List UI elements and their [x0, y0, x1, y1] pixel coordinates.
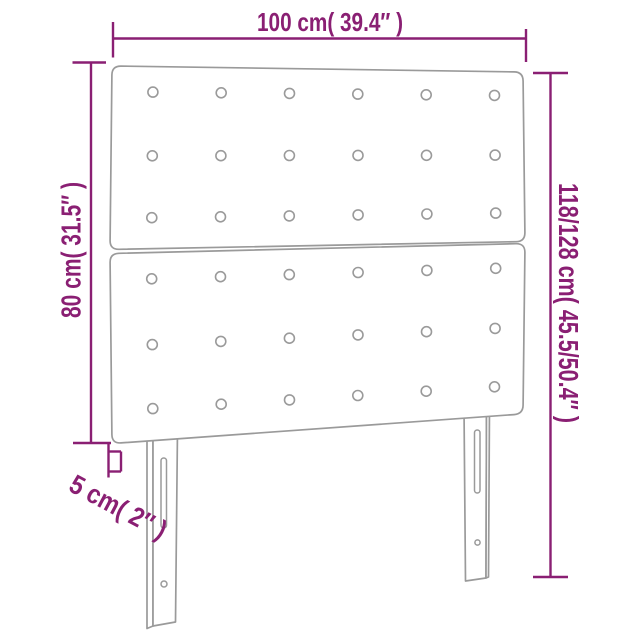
width-dimension-label: 100 cm( 39.4″ ): [257, 7, 403, 37]
tufting-button: [422, 150, 432, 160]
right-leg-side-face: [486, 406, 490, 578]
tufting-button: [422, 327, 432, 337]
tufting-button: [353, 210, 363, 220]
tufting-button: [491, 208, 501, 218]
tufting-button: [147, 151, 157, 161]
tufting-button: [422, 265, 432, 275]
headboard-panels: [110, 66, 525, 443]
right-leg-screw-hole: [475, 540, 480, 545]
tufting-button: [148, 87, 158, 97]
tufting-button: [216, 272, 226, 282]
tufting-button: [285, 88, 295, 98]
board-height-dimension-label: 80 cm( 31.5″ ): [56, 182, 87, 318]
tufting-button: [353, 391, 363, 401]
tufting-button: [147, 274, 157, 284]
tufting-button: [490, 323, 500, 333]
tufting-button: [422, 209, 432, 219]
diagram-canvas: 100 cm( 39.4″ ) 80 cm( 31.5″ ) 118/128 c…: [0, 0, 640, 640]
tufting-button: [284, 333, 294, 343]
tufting-button: [353, 330, 363, 340]
tufting-button: [216, 212, 226, 222]
total-height-dimension-label: 118/128 cm( 45.5/50.4″ ): [553, 183, 584, 423]
tufting-button: [284, 211, 294, 221]
tufting-button: [216, 399, 226, 409]
right-leg-slot: [475, 430, 481, 493]
tufting-button: [353, 150, 363, 160]
tufting-button: [216, 151, 226, 161]
tufting-button: [284, 270, 294, 280]
tufting-button: [147, 213, 157, 223]
tufting-button: [147, 340, 157, 350]
headboard-upper-panel: [110, 66, 525, 249]
tufting-button: [490, 382, 500, 392]
tufting-button: [353, 268, 363, 278]
tufting-button: [490, 150, 500, 160]
tufting-button: [353, 89, 363, 99]
tufting-button: [285, 395, 295, 405]
tufting-button: [216, 336, 226, 346]
tufting-button: [491, 263, 501, 273]
tufting-button: [148, 404, 158, 414]
tufting-button: [284, 151, 294, 161]
tufting-button: [490, 90, 500, 100]
legs: [147, 406, 490, 629]
headboard-dimension-diagram: 100 cm( 39.4″ ) 80 cm( 31.5″ ) 118/128 c…: [0, 0, 640, 640]
left-leg-screw-hole: [161, 581, 167, 587]
tufting-button: [421, 90, 431, 100]
tufting-button: [421, 386, 431, 396]
tufting-button: [216, 88, 226, 98]
headboard-lower-panel: [110, 244, 525, 443]
